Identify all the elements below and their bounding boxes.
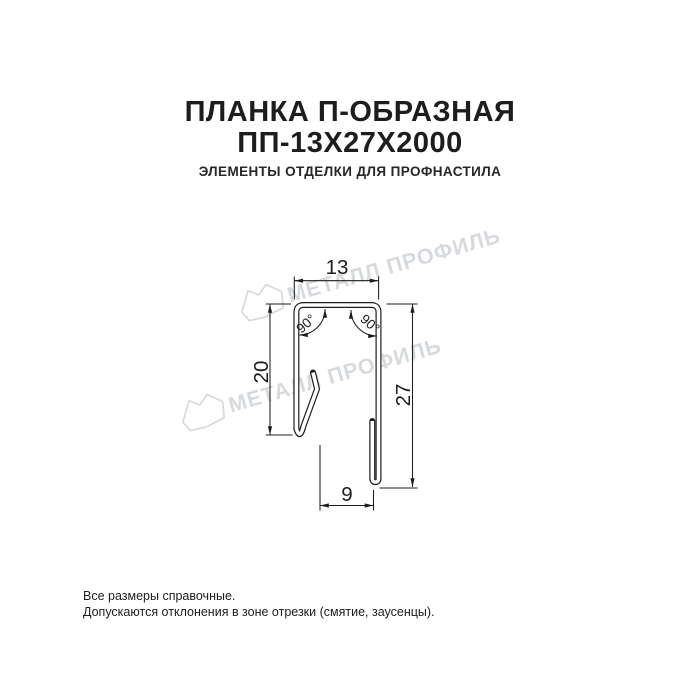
footnotes: Все размеры справочные. Допускаются откл… <box>83 589 435 620</box>
dim-label-top-width: 13 <box>326 256 349 279</box>
metall-profil-logo-icon <box>177 391 228 433</box>
product-drawing-page: ПЛАНКА П-ОБРАЗНАЯ ПП-13Х27Х2000 ЭЛЕМЕНТЫ… <box>0 0 700 700</box>
watermark-text: МЕТАЛЛ ПРОФИЛЬ <box>285 224 504 308</box>
watermark-lower: МЕТАЛЛ ПРОФИЛЬ <box>177 329 445 433</box>
metall-profil-logo-icon <box>236 281 287 323</box>
dim-label-right-height: 27 <box>392 384 415 407</box>
footnote-line2: Допускаются отклонения в зоне отрезки (с… <box>83 605 435 621</box>
dim-label-left-height: 20 <box>250 361 273 384</box>
dim-label-bottom-width: 9 <box>341 483 352 506</box>
footnote-line1: Все размеры справочные. <box>83 589 435 605</box>
